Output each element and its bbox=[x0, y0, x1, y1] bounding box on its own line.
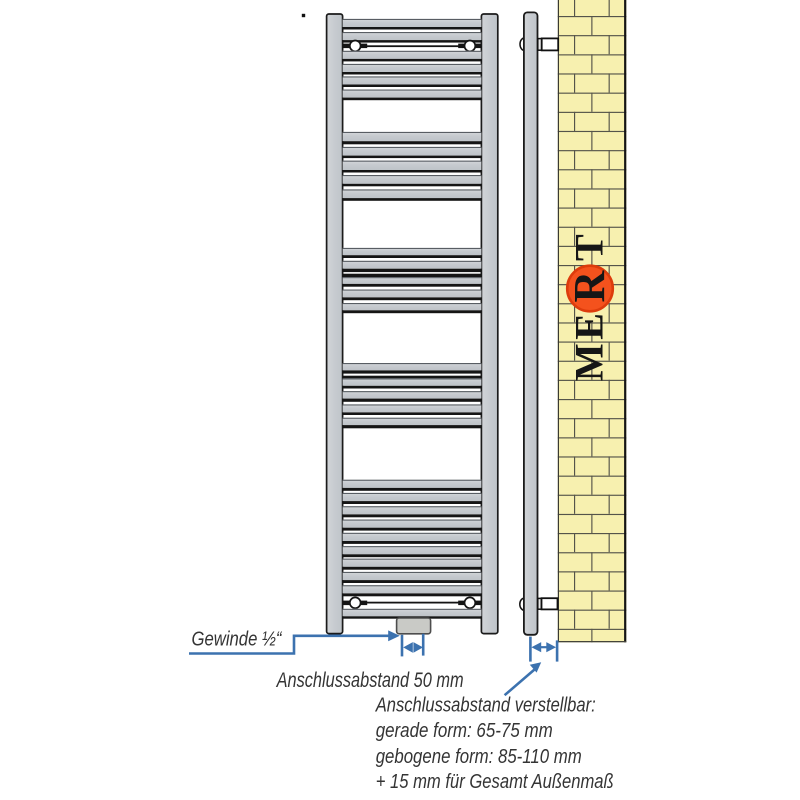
svg-text:M: M bbox=[567, 343, 612, 381]
svg-text:gerade form: 65-75 mm: gerade form: 65-75 mm bbox=[376, 719, 553, 742]
svg-text:Anschlussabstand 50 mm: Anschlussabstand 50 mm bbox=[275, 668, 464, 692]
svg-text:T: T bbox=[567, 234, 612, 261]
svg-text:E: E bbox=[567, 313, 612, 340]
svg-text:Anschlussabstand verstellbar:: Anschlussabstand verstellbar: bbox=[374, 693, 596, 716]
svg-text:gebogene form: 85-110 mm: gebogene form: 85-110 mm bbox=[376, 745, 582, 768]
svg-text:+ 15 mm für Gesamt Außenmaß: + 15 mm für Gesamt Außenmaß bbox=[376, 770, 614, 793]
svg-text:R: R bbox=[565, 269, 614, 302]
svg-text:Gewinde ½“: Gewinde ½“ bbox=[192, 629, 283, 651]
